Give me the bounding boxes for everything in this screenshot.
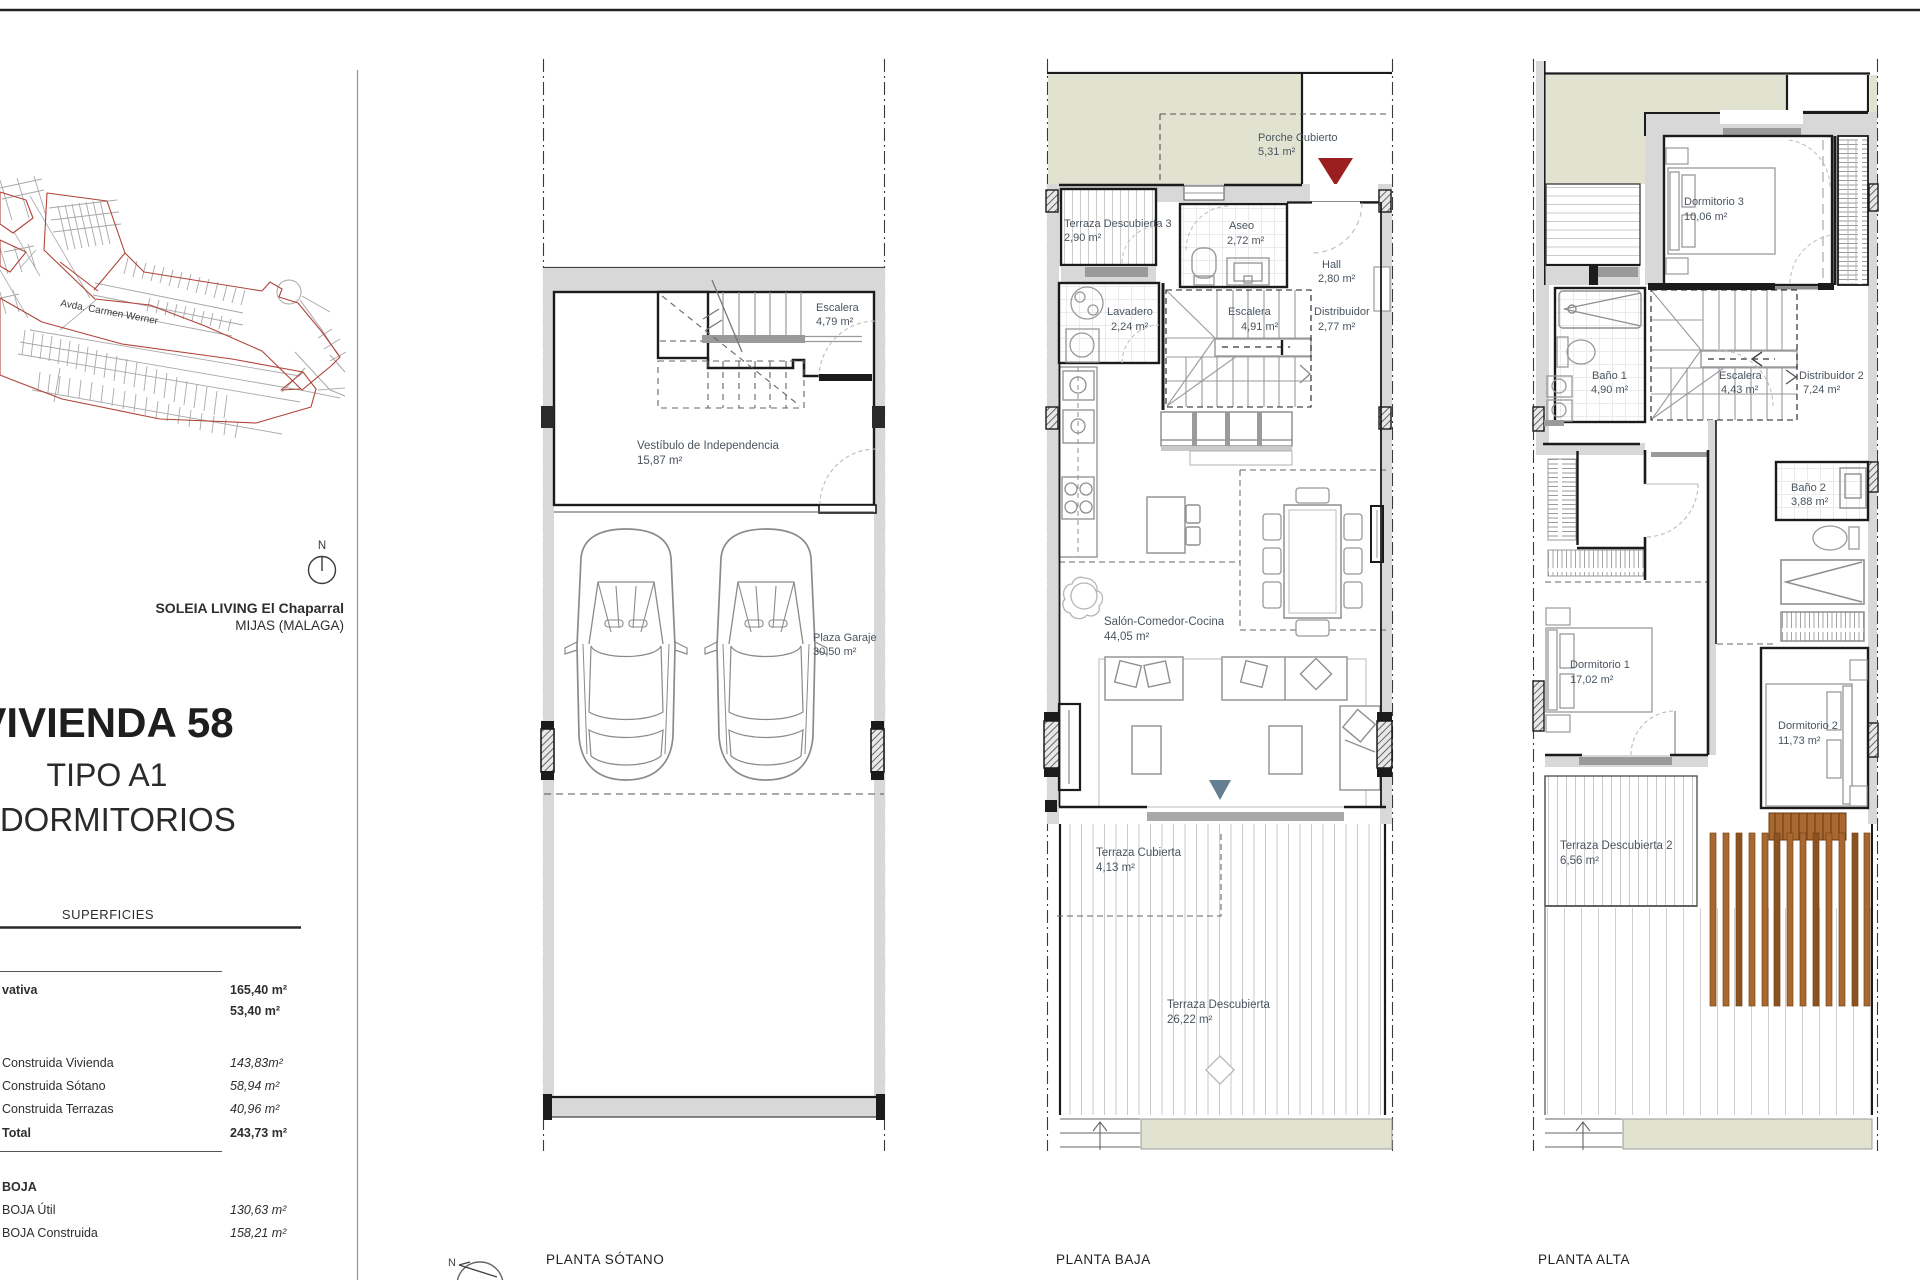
svg-text:Total: Total (2, 1126, 31, 1140)
svg-text:4,90 m²: 4,90 m² (1591, 384, 1629, 396)
svg-text:2,90 m²: 2,90 m² (1064, 232, 1102, 244)
svg-text:Dormitorio 2: Dormitorio 2 (1778, 720, 1838, 732)
svg-text:Hall: Hall (1322, 259, 1341, 271)
svg-text:4,43 m²: 4,43 m² (1721, 384, 1759, 396)
svg-text:Distribuidor: Distribuidor (1314, 306, 1370, 318)
svg-text:6,56 m²: 6,56 m² (1560, 855, 1599, 867)
svg-text:3,88 m²: 3,88 m² (1791, 496, 1829, 508)
svg-text:Terraza Cubierta: Terraza Cubierta (1096, 847, 1182, 859)
svg-text:BOJA Útil: BOJA Útil (2, 1202, 56, 1217)
svg-text:Distribuidor 2: Distribuidor 2 (1799, 370, 1864, 382)
svg-text:Construida Sótano: Construida Sótano (2, 1079, 106, 1093)
svg-text:3 DORMITORIOS: 3 DORMITORIOS (0, 801, 236, 838)
svg-text:2,72 m²: 2,72 m² (1227, 235, 1265, 247)
svg-text:Baño 1: Baño 1 (1592, 370, 1627, 382)
svg-text:7,24 m²: 7,24 m² (1803, 384, 1841, 396)
svg-text:Construida Vivienda: Construida Vivienda (2, 1056, 114, 1070)
svg-text:Escalera: Escalera (1719, 370, 1763, 382)
svg-text:SUPERFICIES: SUPERFICIES (62, 907, 154, 922)
svg-text:Porche Cubierto: Porche Cubierto (1258, 132, 1338, 144)
svg-text:N: N (448, 1257, 456, 1269)
svg-text:VIVIENDA 58: VIVIENDA 58 (0, 699, 234, 746)
svg-text:40,96 m²: 40,96 m² (230, 1102, 280, 1116)
svg-text:30,50 m²: 30,50 m² (813, 646, 857, 658)
svg-text:58,94 m²: 58,94 m² (230, 1079, 280, 1093)
svg-text:PLANTA ALTA: PLANTA ALTA (1538, 1252, 1630, 1267)
svg-text:Construida Terrazas: Construida Terrazas (2, 1102, 114, 1116)
svg-text:Lavadero: Lavadero (1107, 306, 1153, 318)
svg-text:N: N (318, 540, 326, 552)
svg-text:26,22 m²: 26,22 m² (1167, 1014, 1213, 1026)
svg-text:10,06 m²: 10,06 m² (1684, 211, 1728, 223)
svg-text:2,24 m²: 2,24 m² (1111, 321, 1149, 333)
svg-text:130,63 m²: 130,63 m² (230, 1203, 287, 1217)
svg-text:143,83m²: 143,83m² (230, 1056, 284, 1070)
svg-text:Baño 2: Baño 2 (1791, 482, 1826, 494)
svg-text:Terraza Descubierta 3: Terraza Descubierta 3 (1064, 218, 1172, 230)
svg-text:Aseo: Aseo (1229, 220, 1254, 232)
svg-text:5,31 m²: 5,31 m² (1258, 146, 1296, 158)
svg-text:2,77 m²: 2,77 m² (1318, 321, 1356, 333)
svg-text:4,91 m²: 4,91 m² (1241, 321, 1279, 333)
svg-text:PLANTA SÓTANO: PLANTA SÓTANO (546, 1252, 664, 1267)
svg-text:Terraza Descubierta: Terraza Descubierta (1167, 999, 1271, 1011)
svg-text:BOJA: BOJA (2, 1180, 37, 1194)
svg-text:2,80 m²: 2,80 m² (1318, 273, 1356, 285)
svg-text:17,02 m²: 17,02 m² (1570, 674, 1614, 686)
svg-text:165,40 m²: 165,40 m² (230, 983, 287, 997)
svg-text:SOLEIA LIVING El Chaparral: SOLEIA LIVING El Chaparral (155, 600, 344, 616)
svg-text:MIJAS (MALAGA): MIJAS (MALAGA) (235, 618, 344, 633)
svg-text:15,87 m²: 15,87 m² (637, 455, 683, 467)
svg-text:4,79 m²: 4,79 m² (816, 316, 854, 328)
svg-text:PLANTA BAJA: PLANTA BAJA (1056, 1252, 1151, 1267)
svg-text:Salón-Comedor-Cocina: Salón-Comedor-Cocina (1104, 616, 1225, 628)
svg-text:11,73 m²: 11,73 m² (1778, 735, 1821, 747)
svg-text:vativa: vativa (2, 983, 38, 997)
svg-text:158,21 m²: 158,21 m² (230, 1226, 287, 1240)
svg-text:44,05 m²: 44,05 m² (1104, 631, 1150, 643)
svg-text:Avda. Carmen Werner: Avda. Carmen Werner (59, 298, 159, 327)
svg-text:Terraza Descubierta 2: Terraza Descubierta 2 (1560, 840, 1673, 852)
svg-text:TIPO A1: TIPO A1 (47, 757, 168, 793)
svg-text:243,73 m²: 243,73 m² (230, 1126, 287, 1140)
svg-text:Dormitorio 1: Dormitorio 1 (1570, 659, 1630, 671)
svg-text:4,13 m²: 4,13 m² (1096, 862, 1135, 874)
svg-text:Escalera: Escalera (1228, 306, 1272, 318)
svg-text:53,40 m²: 53,40 m² (230, 1004, 280, 1018)
svg-text:Plaza Garaje: Plaza Garaje (813, 632, 877, 644)
svg-text:BOJA Construida: BOJA Construida (2, 1226, 98, 1240)
svg-text:Dormitorio 3: Dormitorio 3 (1684, 196, 1744, 208)
svg-text:Escalera: Escalera (816, 302, 860, 314)
svg-text:Vestíbulo de Independencia: Vestíbulo de Independencia (637, 440, 780, 452)
